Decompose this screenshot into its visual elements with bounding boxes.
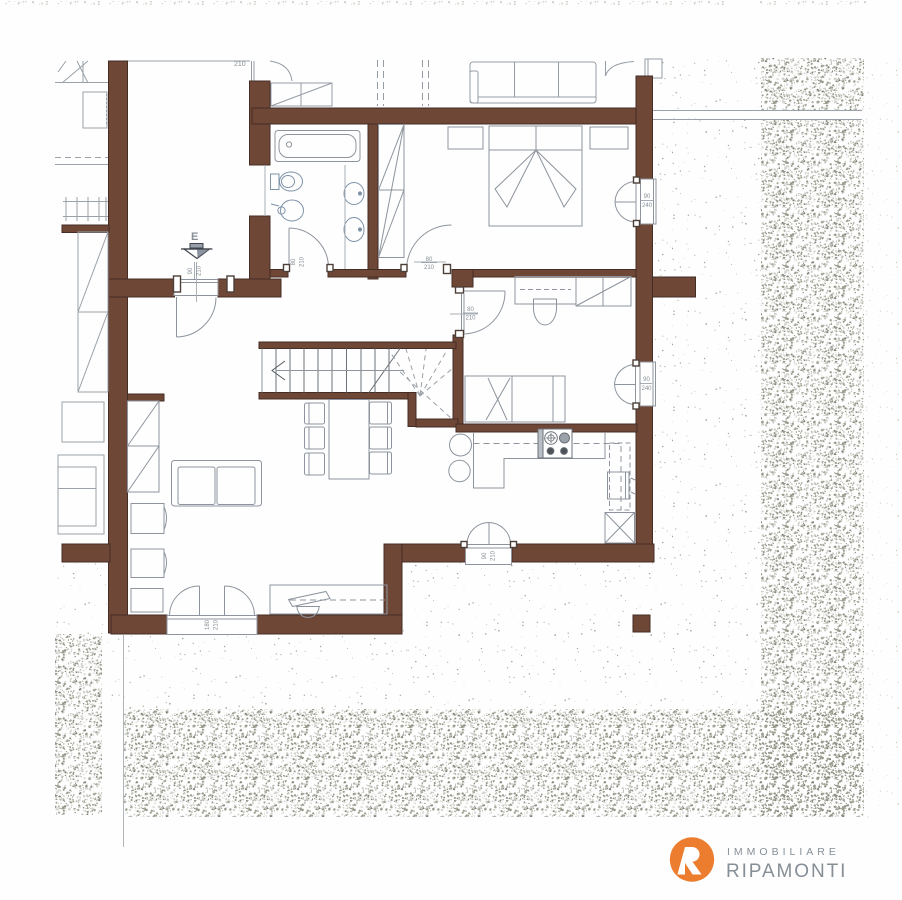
svg-text:RIPAMONTI: RIPAMONTI xyxy=(726,861,847,882)
svg-text:90: 90 xyxy=(644,194,651,200)
svg-text:90: 90 xyxy=(482,552,488,559)
svg-text:210: 210 xyxy=(234,61,246,68)
svg-text:240: 240 xyxy=(642,203,653,209)
svg-text:210: 210 xyxy=(491,550,497,561)
svg-text:210: 210 xyxy=(197,265,203,276)
svg-text:E: E xyxy=(191,231,198,243)
svg-text:210: 210 xyxy=(300,256,306,267)
svg-text:210: 210 xyxy=(424,265,435,271)
svg-text:90: 90 xyxy=(188,267,194,274)
svg-text:80: 80 xyxy=(291,258,297,265)
svg-text:IMMOBILIARE: IMMOBILIARE xyxy=(727,846,840,858)
svg-text:90: 90 xyxy=(643,377,650,383)
svg-text:180: 180 xyxy=(205,619,211,630)
svg-text:80: 80 xyxy=(426,257,433,263)
svg-text:80: 80 xyxy=(467,307,474,313)
svg-text:210: 210 xyxy=(465,316,476,322)
svg-text:240: 240 xyxy=(641,386,652,392)
svg-text:210: 210 xyxy=(214,619,220,630)
